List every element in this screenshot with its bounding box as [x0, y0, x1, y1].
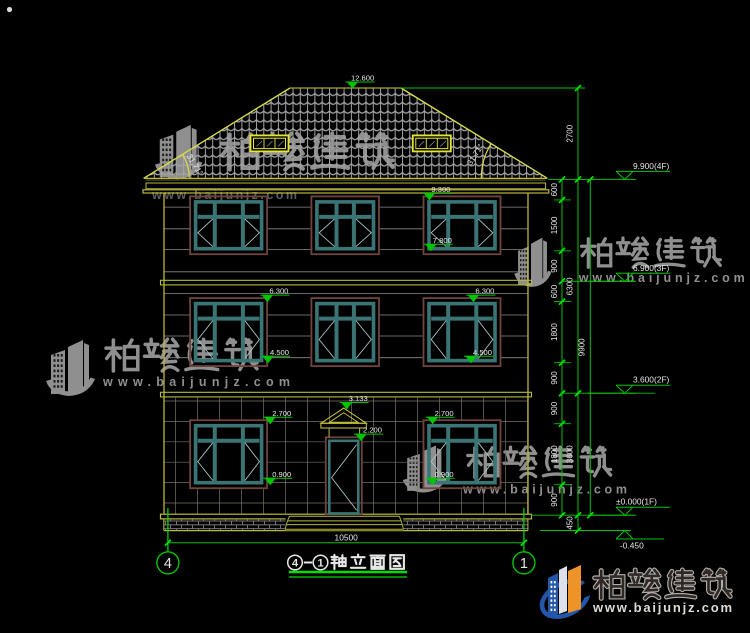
svg-text:6.300: 6.300: [269, 287, 288, 296]
svg-text:6.300: 6.300: [475, 287, 494, 296]
svg-text:9.900(4F): 9.900(4F): [633, 161, 670, 171]
svg-text:3.600(2F): 3.600(2F): [633, 375, 670, 385]
svg-text:www.baijunjz.com: www.baijunjz.com: [102, 375, 290, 389]
svg-text:450: 450: [566, 516, 575, 530]
svg-text:1800: 1800: [550, 323, 559, 341]
svg-text:3.133: 3.133: [349, 394, 368, 403]
svg-text:12.600: 12.600: [351, 74, 374, 83]
svg-text:1800: 1800: [550, 445, 559, 463]
svg-text:1: 1: [520, 556, 528, 572]
svg-text:2.700: 2.700: [435, 409, 454, 418]
svg-text:900: 900: [550, 259, 559, 273]
svg-text:9900: 9900: [578, 338, 587, 356]
svg-text:0.900: 0.900: [435, 470, 454, 479]
svg-text:2.200: 2.200: [363, 426, 382, 435]
svg-text:2700: 2700: [566, 124, 575, 142]
svg-text:4.500: 4.500: [270, 348, 289, 357]
svg-text:900: 900: [550, 371, 559, 385]
svg-text:-0.450: -0.450: [620, 541, 644, 551]
svg-text:±0.000(1F): ±0.000(1F): [616, 497, 657, 507]
svg-text:600: 600: [550, 284, 559, 298]
svg-text:6.900(3F): 6.900(3F): [633, 263, 670, 273]
svg-text:4.500: 4.500: [473, 348, 492, 357]
svg-text:9.300: 9.300: [431, 185, 450, 194]
svg-text:3600: 3600: [566, 445, 575, 463]
svg-text:900: 900: [550, 493, 559, 507]
svg-text:www.baijunjz.com: www.baijunjz.com: [592, 600, 732, 615]
svg-text:1500: 1500: [550, 216, 559, 234]
svg-text:1: 1: [317, 558, 323, 570]
svg-text:900: 900: [550, 401, 559, 415]
svg-text:www.baijunjz.com: www.baijunjz.com: [462, 483, 627, 497]
svg-text:0.900: 0.900: [272, 470, 291, 479]
svg-text:4: 4: [164, 556, 172, 572]
svg-text:6300: 6300: [566, 277, 575, 295]
svg-text:7.800: 7.800: [433, 236, 452, 245]
svg-text:2.700: 2.700: [272, 409, 291, 418]
svg-text:10500: 10500: [335, 533, 359, 543]
svg-text:600: 600: [550, 182, 559, 196]
svg-text:4: 4: [292, 558, 299, 570]
